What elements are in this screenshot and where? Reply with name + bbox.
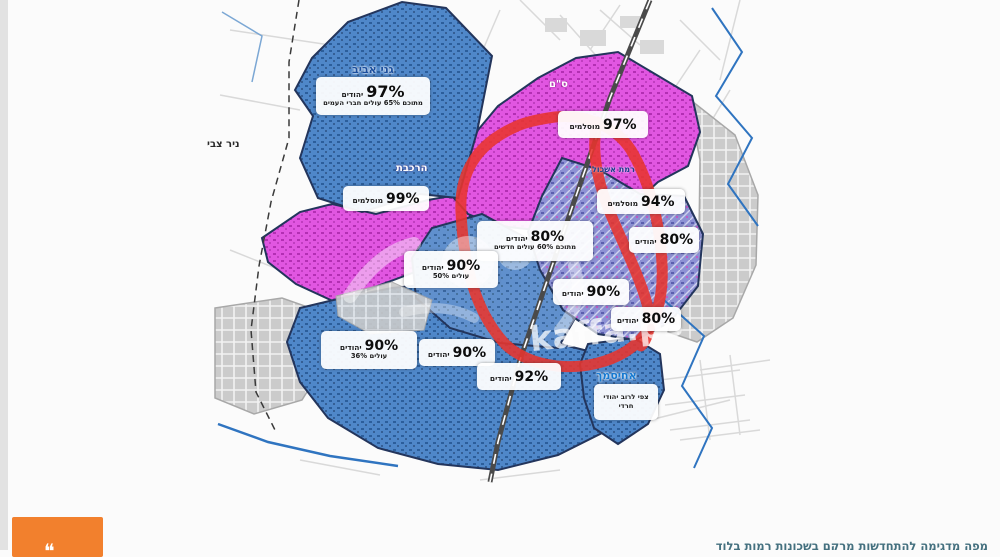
demographic-map-of-lod: kaffa.ps גני אביב ניר צבי הרכבת ס"ם רמת … bbox=[0, 0, 1000, 550]
stat-label-gani-aviv: 97%יהודים מתוכם 65% עולים חברי העמים bbox=[316, 77, 430, 115]
stat-percentage: 80% bbox=[531, 230, 565, 244]
stat-label-southeast: 80%יהודים bbox=[611, 307, 681, 331]
place-name-sam: ס"ם bbox=[549, 79, 568, 90]
stat-group: מוסלמים bbox=[570, 123, 601, 131]
stat-label-center: 90%יהודים עולים 50% bbox=[404, 251, 498, 288]
stat-group: יהודים bbox=[422, 264, 444, 272]
place-name-ahisamakh: אחיסמך bbox=[596, 369, 637, 382]
stat-group: יהודים bbox=[617, 317, 639, 325]
stat-label-northeast: 94%מוסלמים bbox=[597, 189, 685, 214]
stat-group: יהודים bbox=[635, 238, 657, 246]
stat-percentage: 90% bbox=[453, 346, 487, 360]
stat-group: יהודים bbox=[341, 91, 363, 99]
stat-group: יהודים bbox=[428, 351, 450, 359]
stat-note: מתוכם 65% עולים חברי העמים bbox=[323, 100, 423, 108]
quote-icon: ❝ bbox=[44, 541, 55, 557]
place-name-harakevet: הרכבת bbox=[396, 163, 427, 174]
map-graphic: kaffa.ps bbox=[0, 0, 1000, 550]
map-caption: מפה מדגימה להתחדשות מרקם בשכונות רמות בל… bbox=[716, 539, 988, 550]
stat-percentage: 94% bbox=[641, 195, 675, 209]
stat-note: צפי לרוב יהודי חרדי bbox=[597, 393, 655, 411]
building-blocks bbox=[545, 16, 664, 54]
stat-label-east: 80%יהודים bbox=[629, 227, 699, 253]
stat-percentage: 90% bbox=[447, 259, 481, 273]
stat-note: עולים 50% bbox=[433, 273, 469, 281]
stat-percentage: 90% bbox=[587, 285, 621, 299]
stat-group: יהודים bbox=[562, 290, 584, 298]
stat-label-ahisamakh-forecast: צפי לרוב יהודי חרדי bbox=[594, 384, 658, 420]
pull-quote-block: ❝ bbox=[12, 517, 103, 557]
stat-label-south-center: 90%יהודים bbox=[419, 339, 495, 366]
stat-percentage: 80% bbox=[660, 233, 694, 247]
stat-percentage: 90% bbox=[365, 339, 399, 353]
stat-percentage: 97% bbox=[366, 84, 404, 100]
stat-note: עולים 36% bbox=[351, 353, 387, 361]
stat-percentage: 99% bbox=[386, 192, 420, 206]
stat-group: יהודים bbox=[340, 344, 362, 352]
stat-percentage: 92% bbox=[515, 370, 549, 384]
stat-label-southwest: 90%יהודים עולים 36% bbox=[321, 331, 417, 369]
place-name-nir-tzvi: ניר צבי bbox=[207, 139, 240, 150]
stat-percentage: 97% bbox=[603, 118, 637, 132]
stat-label-center-east: 90%יהודים bbox=[553, 279, 629, 305]
stat-note: מתוכם 60% עולים חדשים bbox=[494, 244, 576, 252]
stat-group: יהודים bbox=[490, 375, 512, 383]
stat-percentage: 80% bbox=[642, 312, 676, 326]
stat-label-south: 92%יהודים bbox=[477, 363, 561, 390]
stat-group: מוסלמים bbox=[608, 200, 639, 208]
stat-group: מוסלמים bbox=[353, 197, 384, 205]
stat-label-harakevet: 99%מוסלמים bbox=[343, 186, 429, 211]
place-name-gani-aviv: גני אביב bbox=[352, 63, 394, 76]
stat-group: יהודים bbox=[506, 235, 528, 243]
place-name-ramat-eshkol: רמת אשכול bbox=[592, 165, 635, 174]
stat-label-north: 97%מוסלמים bbox=[558, 111, 648, 138]
